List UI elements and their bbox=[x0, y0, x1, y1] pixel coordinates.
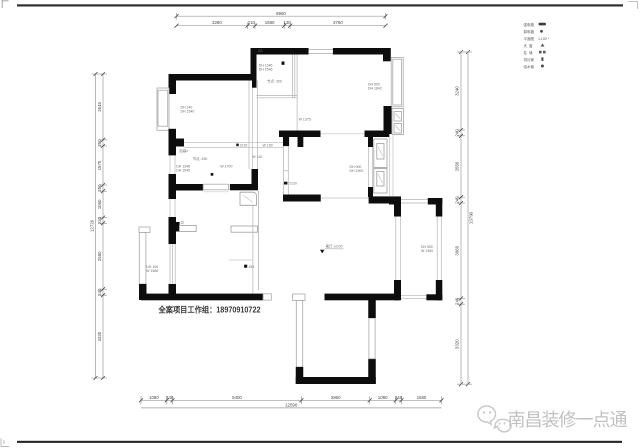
svg-text:2120: 2120 bbox=[240, 143, 248, 147]
svg-text:DH 1546: DH 1546 bbox=[259, 68, 273, 72]
svg-text:1060: 1060 bbox=[97, 199, 102, 209]
svg-text:230: 230 bbox=[97, 216, 102, 224]
svg-text:天 窗: 天 窗 bbox=[524, 43, 533, 48]
svg-text:1:100 *: 1:100 * bbox=[538, 37, 550, 41]
svg-text:强电箱: 强电箱 bbox=[524, 22, 535, 27]
svg-text:DH 1842: DH 1842 bbox=[368, 87, 382, 91]
svg-text:排污管: 排污管 bbox=[524, 57, 535, 62]
svg-text:130: 130 bbox=[284, 20, 292, 25]
svg-text:240: 240 bbox=[455, 129, 460, 137]
svg-text:3240: 3240 bbox=[455, 86, 460, 96]
svg-text:2550: 2550 bbox=[455, 161, 460, 171]
svg-text:3320: 3320 bbox=[97, 331, 102, 341]
svg-text:2645: 2645 bbox=[97, 101, 102, 111]
svg-text:DH 1546: DH 1546 bbox=[176, 169, 190, 173]
svg-text:1090: 1090 bbox=[378, 395, 388, 400]
svg-text:3760: 3760 bbox=[333, 20, 343, 25]
svg-text:1080: 1080 bbox=[149, 395, 159, 400]
svg-text:客厅 ±0.00: 客厅 ±0.00 bbox=[326, 244, 343, 249]
svg-text:给水管: 给水管 bbox=[524, 64, 535, 69]
svg-text:2120: 2120 bbox=[289, 182, 297, 186]
svg-text:DH 1540: DH 1540 bbox=[181, 110, 195, 114]
svg-text:3960: 3960 bbox=[455, 245, 460, 255]
svg-text:250: 250 bbox=[97, 184, 102, 192]
svg-text:节点: 300: 节点: 300 bbox=[267, 79, 282, 84]
svg-text:12720: 12720 bbox=[90, 219, 95, 232]
svg-text:250: 250 bbox=[97, 139, 102, 147]
svg-text:南昌装修一点通: 南昌装修一点通 bbox=[508, 410, 628, 430]
svg-text:240: 240 bbox=[455, 297, 460, 305]
svg-text:8960: 8960 bbox=[276, 11, 286, 16]
svg-text:W 1375: W 1375 bbox=[299, 117, 311, 121]
svg-text:加高s: 加高s bbox=[179, 148, 188, 153]
svg-text:240: 240 bbox=[455, 196, 460, 204]
svg-text:240: 240 bbox=[97, 288, 102, 296]
svg-text:弱电箱: 弱电箱 bbox=[524, 29, 535, 34]
svg-text:3320: 3320 bbox=[455, 339, 460, 349]
svg-text:1680: 1680 bbox=[417, 395, 427, 400]
svg-text:13790: 13790 bbox=[469, 211, 474, 224]
svg-text:W 1700: W 1700 bbox=[220, 164, 232, 168]
svg-text:全案项目工作组：18970910722: 全案项目工作组：18970910722 bbox=[158, 305, 261, 315]
svg-text:12590: 12590 bbox=[285, 403, 298, 408]
svg-text:柱 墙: 柱 墙 bbox=[524, 50, 533, 55]
svg-text:DH 1900: DH 1900 bbox=[350, 169, 364, 173]
svg-text:240: 240 bbox=[166, 395, 174, 400]
svg-text:W 150: W 150 bbox=[263, 144, 273, 148]
svg-text:平面图: 平面图 bbox=[524, 36, 535, 41]
svg-text:150: 150 bbox=[248, 265, 254, 269]
svg-text:5400: 5400 bbox=[232, 395, 242, 400]
svg-text:210: 210 bbox=[248, 20, 256, 25]
svg-text:2860: 2860 bbox=[331, 395, 341, 400]
svg-text:W 1580: W 1580 bbox=[146, 269, 158, 273]
svg-text:W 1360: W 1360 bbox=[421, 249, 433, 253]
svg-text:2650: 2650 bbox=[97, 251, 102, 261]
svg-text:节点: 450: 节点: 450 bbox=[193, 156, 208, 161]
svg-text:1580: 1580 bbox=[265, 20, 275, 25]
svg-text:3280: 3280 bbox=[212, 20, 222, 25]
svg-text:1570: 1570 bbox=[97, 160, 102, 170]
svg-text:240: 240 bbox=[395, 395, 403, 400]
svg-text:ZD: ZD bbox=[258, 49, 263, 53]
